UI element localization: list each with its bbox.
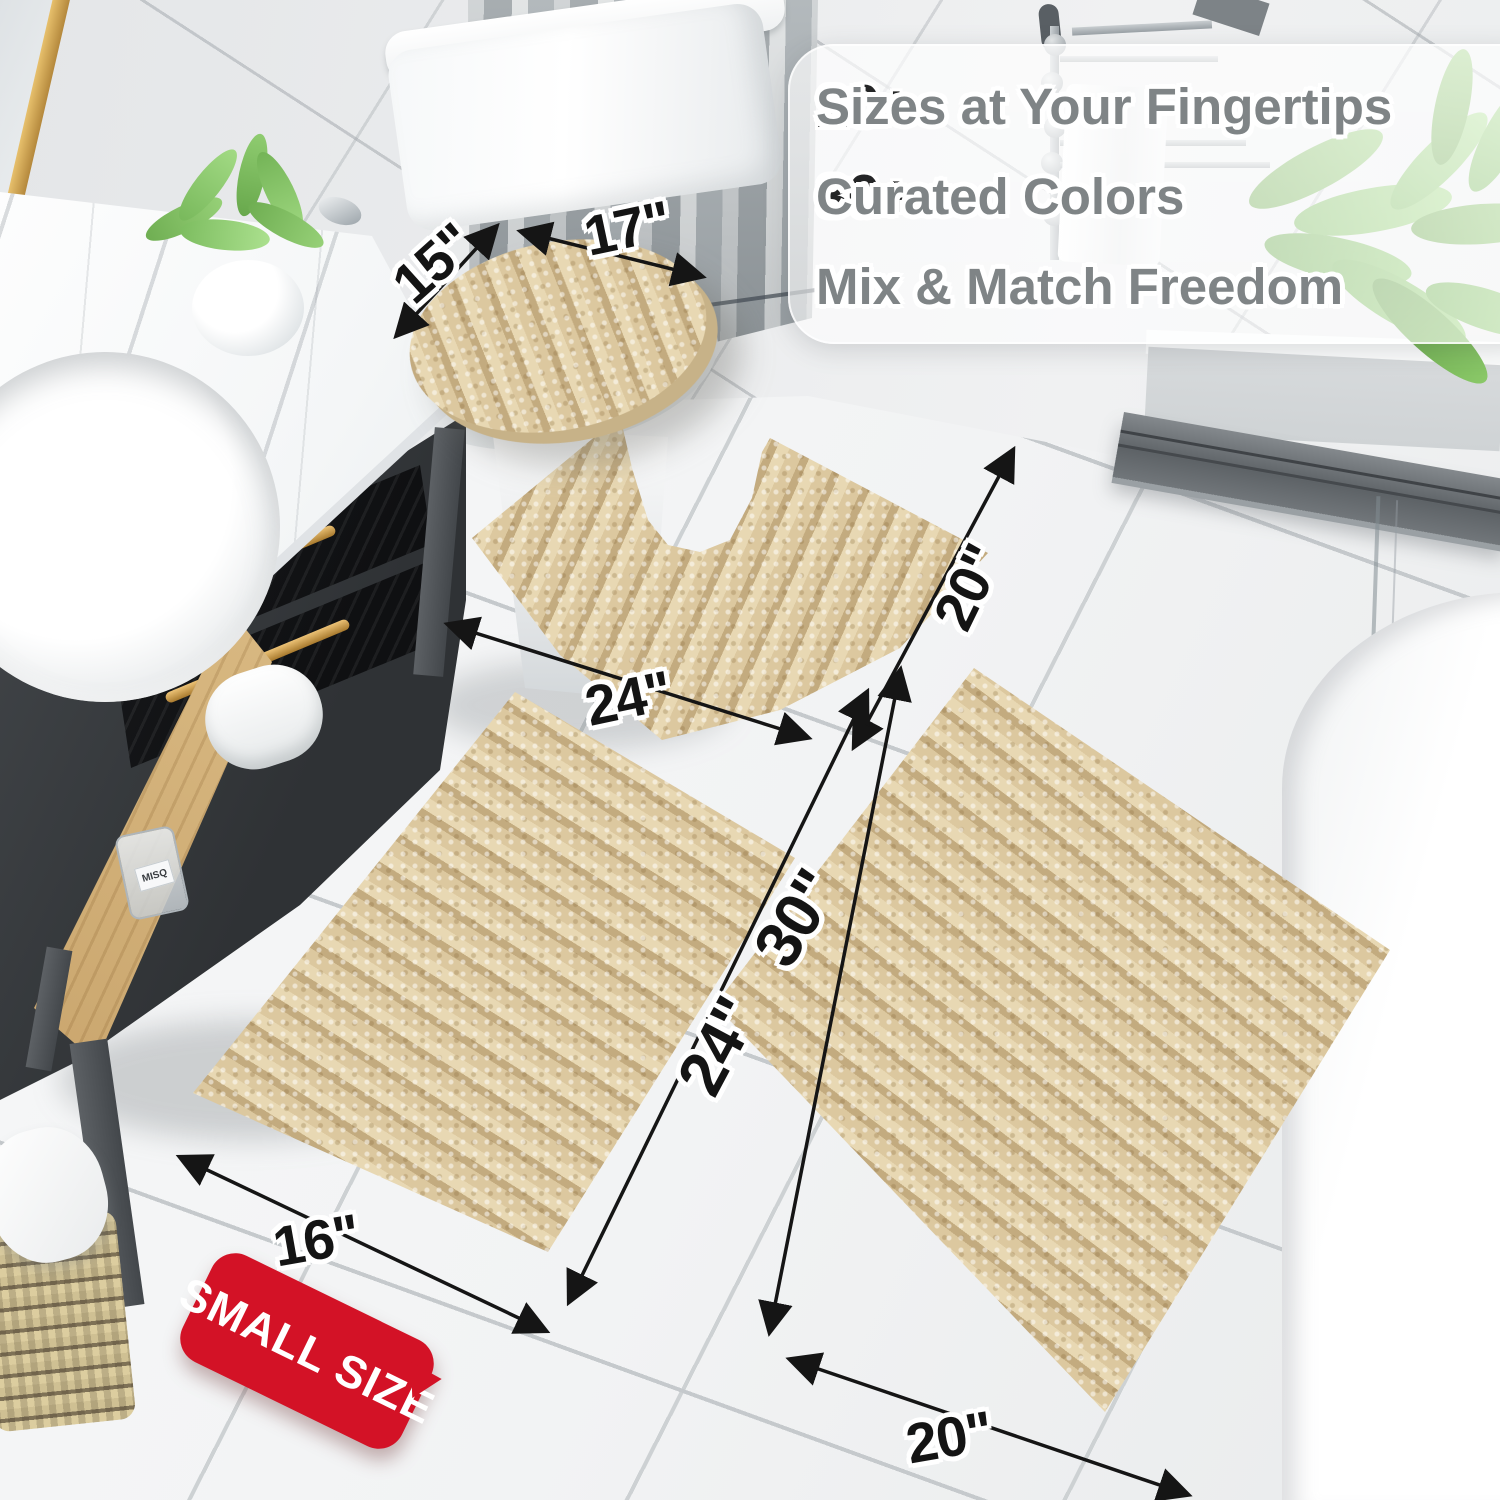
- arrow-large-length: [770, 672, 900, 1330]
- bathroom-product-scene: MISQ: [0, 0, 1500, 1500]
